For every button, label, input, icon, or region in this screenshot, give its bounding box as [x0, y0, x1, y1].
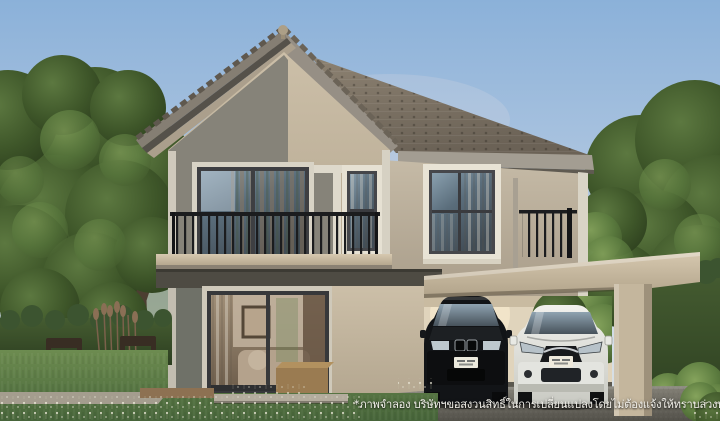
balcony-railing — [172, 216, 378, 258]
license-plate-black-car — [454, 357, 478, 368]
downspout — [513, 178, 518, 278]
disclaimer-caption: *ภาพจำลอง บริษัทฯขอสงวนสิทธิ์ในการเปลี่ย… — [354, 398, 711, 412]
render-image: *ภาพจำลอง บริษัทฯขอสงวนสิทธิ์ในการเปลี่ย… — [0, 0, 720, 421]
license-plate-white-car — [549, 356, 573, 367]
roof-finial — [278, 25, 288, 35]
deck-railing — [519, 208, 577, 258]
wildflowers — [0, 396, 360, 421]
right-window — [423, 164, 501, 264]
scene-illustration — [0, 0, 720, 421]
